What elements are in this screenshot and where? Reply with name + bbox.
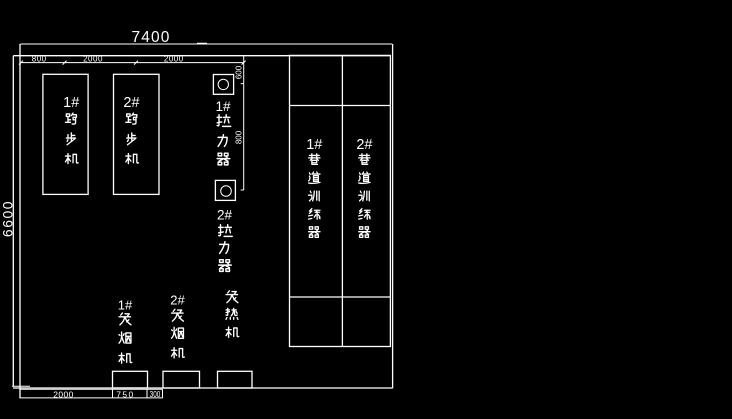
svg-text:800: 800	[32, 55, 47, 64]
svg-text:2000: 2000	[164, 55, 184, 64]
svg-text:2#: 2#	[123, 95, 139, 111]
svg-text:2#: 2#	[356, 137, 372, 153]
svg-text:1#: 1#	[306, 137, 322, 153]
svg-text:750: 750	[116, 389, 134, 399]
svg-text:1#: 1#	[118, 298, 133, 313]
svg-text:2#: 2#	[170, 293, 185, 308]
svg-text:7400: 7400	[132, 29, 171, 46]
svg-text:800: 800	[234, 130, 243, 144]
svg-text:2000: 2000	[83, 55, 103, 64]
svg-text:2000: 2000	[53, 389, 74, 399]
svg-text:1#: 1#	[63, 95, 79, 111]
svg-text:600: 600	[235, 65, 244, 79]
svg-text:300: 300	[150, 389, 161, 399]
svg-text:6600: 6600	[0, 200, 16, 237]
svg-text:1#: 1#	[215, 99, 231, 114]
svg-text:2#: 2#	[217, 208, 233, 223]
